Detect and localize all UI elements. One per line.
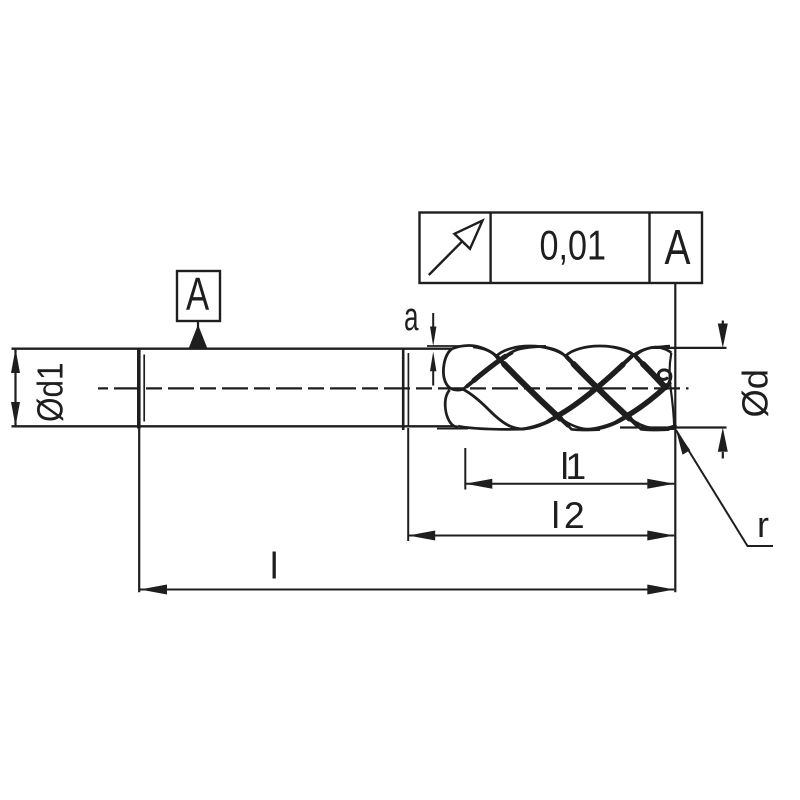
svg-text:l: l	[270, 545, 278, 587]
svg-text:a: a	[404, 295, 419, 339]
svg-text:A: A	[665, 220, 691, 275]
svg-text:l1: l1	[561, 445, 586, 487]
svg-text:l2: l2	[552, 494, 589, 536]
svg-text:Ød1: Ød1	[30, 363, 71, 423]
svg-text:r: r	[757, 504, 769, 545]
svg-text:Ød: Ød	[735, 369, 776, 418]
svg-text:0,01: 0,01	[540, 222, 607, 269]
svg-text:A: A	[186, 268, 209, 320]
